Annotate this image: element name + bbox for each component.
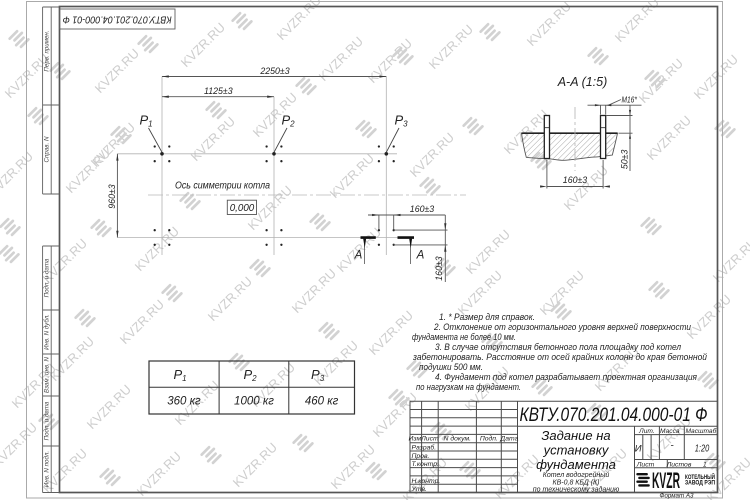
svg-text:Подп. и дата: Подп. и дата (44, 401, 51, 440)
svg-text:KVZR.RU: KVZR.RU (92, 46, 142, 96)
svg-text:Лит.: Лит. (638, 428, 655, 435)
svg-text:160±3: 160±3 (434, 256, 444, 281)
svg-text:160±3: 160±3 (410, 204, 435, 214)
svg-text:50±3: 50±3 (620, 150, 630, 170)
svg-text:KVZR.RU: KVZR.RU (0, 149, 36, 199)
svg-text:Разраб.: Разраб. (412, 444, 437, 452)
svg-text:KVZR.RU: KVZR.RU (205, 274, 255, 324)
svg-text:KVZR.RU: KVZR.RU (710, 235, 750, 285)
svg-text:KVZR.RU: KVZR.RU (178, 20, 228, 70)
svg-text:Пров.: Пров. (412, 453, 430, 460)
svg-text:KVZR.RU: KVZR.RU (463, 227, 513, 277)
svg-text:Дата: Дата (499, 435, 518, 442)
svg-text:КВТУ.070.201.04.000-01 Ф: КВТУ.070.201.04.000-01 Ф (63, 13, 172, 24)
svg-text:P2: P2 (243, 367, 257, 383)
svg-text:Перв. примен.: Перв. примен. (44, 30, 51, 71)
svg-text:2250±3: 2250±3 (259, 66, 289, 76)
svg-text:P1: P1 (140, 113, 153, 129)
svg-text:960±3: 960±3 (107, 184, 117, 209)
svg-text:A: A (416, 250, 425, 262)
svg-text:Лист: Лист (420, 435, 439, 442)
svg-text:1125±3: 1125±3 (204, 86, 233, 96)
svg-text:KVZR.RU: KVZR.RU (134, 449, 184, 499)
svg-text:KVZR.RU: KVZR.RU (636, 56, 686, 106)
svg-text:1000 кг: 1000 кг (234, 396, 274, 408)
svg-text:1. * Размер для справок.: 1. * Размер для справок. (439, 312, 535, 322)
svg-text:360 кг: 360 кг (167, 396, 201, 408)
svg-text:И: И (635, 443, 642, 454)
svg-text:Подп. и дата: Подп. и дата (44, 258, 51, 297)
svg-text:Взам. инв. N: Взам. инв. N (44, 356, 51, 393)
svg-text:KVZR: KVZR (652, 468, 680, 493)
svg-text:Масса: Масса (660, 428, 680, 435)
svg-text:Т.контр.: Т.контр. (412, 461, 440, 468)
svg-text:460 кг: 460 кг (305, 396, 339, 408)
svg-text:KVZR.RU: KVZR.RU (250, 90, 300, 140)
svg-text:подушки 500 мм.: подушки 500 мм. (419, 362, 483, 372)
svg-text:KVZR.RU: KVZR.RU (537, 268, 587, 318)
svg-text:1:20: 1:20 (695, 443, 710, 454)
svg-text:1: 1 (703, 461, 707, 468)
svg-text:A-A (1:5): A-A (1:5) (557, 75, 608, 89)
svg-text:КВ-0,8 КБД (К): КВ-0,8 КБД (К) (553, 479, 600, 486)
svg-text:Котел водогрейный: Котел водогрейный (543, 471, 610, 479)
svg-text:Ось симметрии котла: Ось симметрии котла (175, 181, 270, 192)
svg-text:Справ. N: Справ. N (44, 136, 51, 162)
svg-text:КВТУ.070.201.04.000-01 Ф: КВТУ.070.201.04.000-01 Ф (520, 404, 708, 426)
svg-text:N докум.: N докум. (444, 434, 472, 442)
svg-text:Инв. N подл.: Инв. N подл. (44, 451, 51, 487)
svg-text:KVZR.RU: KVZR.RU (455, 268, 505, 318)
svg-text:A: A (354, 250, 363, 262)
svg-text:Подп.: Подп. (480, 434, 498, 442)
svg-text:KVZR.RU: KVZR.RU (644, 113, 694, 163)
svg-text:установку: установку (543, 442, 610, 457)
svg-text:P1: P1 (173, 367, 186, 383)
svg-text:3. В случае отсутствия бетонно: 3. В случае отсутствия бетонного пола пл… (435, 342, 681, 352)
svg-text:Утв.: Утв. (411, 486, 428, 493)
svg-text:0,000: 0,000 (230, 203, 255, 214)
svg-text:KVZR.RU: KVZR.RU (84, 382, 134, 432)
svg-text:KVZR.RU: KVZR.RU (684, 292, 734, 342)
svg-text:M16*: M16* (622, 95, 638, 104)
svg-text:по техническому заданию: по техническому заданию (533, 486, 620, 494)
svg-text:KVZR.RU: KVZR.RU (132, 224, 182, 274)
svg-text:KVZR.RU: KVZR.RU (289, 266, 339, 316)
svg-text:Н.контр.: Н.контр. (412, 478, 441, 485)
svg-text:4. Фундамент под котел разраба: 4. Фундамент под котел разрабатывает про… (435, 372, 697, 382)
svg-text:160±3: 160±3 (563, 175, 588, 185)
svg-text:фундамента: фундамента (536, 457, 616, 472)
svg-text:забетонировать. Расстояние от: забетонировать. Расстояние от осей крайн… (412, 352, 707, 362)
svg-text:ЗАВОД РЭП: ЗАВОД РЭП (685, 481, 715, 487)
svg-text:P3: P3 (395, 113, 409, 129)
svg-text:KVZR.RU: KVZR.RU (691, 52, 741, 102)
svg-text:KVZR.RU: KVZR.RU (230, 440, 280, 490)
svg-text:по нагрузкам на фундамент.: по нагрузкам на фундамент. (416, 382, 521, 392)
svg-text:KVZR.RU: KVZR.RU (47, 334, 97, 384)
svg-text:Масштаб: Масштаб (685, 427, 716, 435)
svg-text:KVZR.RU: KVZR.RU (426, 22, 476, 72)
svg-text:KVZR.RU: KVZR.RU (188, 114, 238, 164)
svg-text:фундамента не более 10 мм.: фундамента не более 10 мм. (412, 332, 516, 342)
svg-text:KVZR.RU: KVZR.RU (0, 420, 40, 470)
svg-text:Инв. N дубл.: Инв. N дубл. (44, 314, 51, 350)
svg-text:KVZR.RU: KVZR.RU (407, 130, 457, 180)
svg-text:2. Отклонение от горизонтально: 2. Отклонение от горизонтального уровня … (433, 322, 691, 332)
svg-text:KVZR.RU: KVZR.RU (327, 151, 377, 201)
svg-text:KVZR.RU: KVZR.RU (63, 146, 113, 196)
svg-text:KVZR.RU: KVZR.RU (366, 308, 416, 358)
svg-text:KVZR.RU: KVZR.RU (117, 297, 167, 347)
svg-text:Формат А3: Формат А3 (660, 493, 694, 500)
svg-text:Задание на: Задание на (541, 428, 610, 443)
svg-text:P2: P2 (282, 113, 296, 129)
